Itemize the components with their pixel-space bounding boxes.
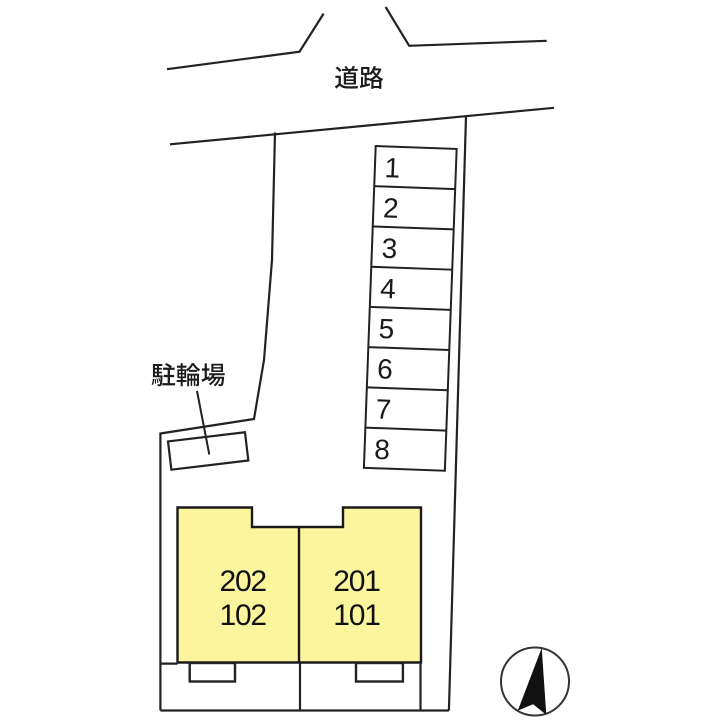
svg-text:1: 1 <box>384 152 401 184</box>
svg-text:3: 3 <box>381 233 398 265</box>
svg-text:202: 202 <box>219 565 266 598</box>
svg-text:4: 4 <box>380 273 397 305</box>
svg-text:6: 6 <box>377 353 394 385</box>
svg-text:5: 5 <box>378 313 395 345</box>
svg-text:8: 8 <box>374 434 391 466</box>
svg-text:7: 7 <box>375 393 392 425</box>
svg-text:2: 2 <box>383 192 400 224</box>
svg-text:102: 102 <box>219 599 266 632</box>
svg-text:201: 201 <box>333 565 380 598</box>
svg-text:101: 101 <box>333 599 380 632</box>
